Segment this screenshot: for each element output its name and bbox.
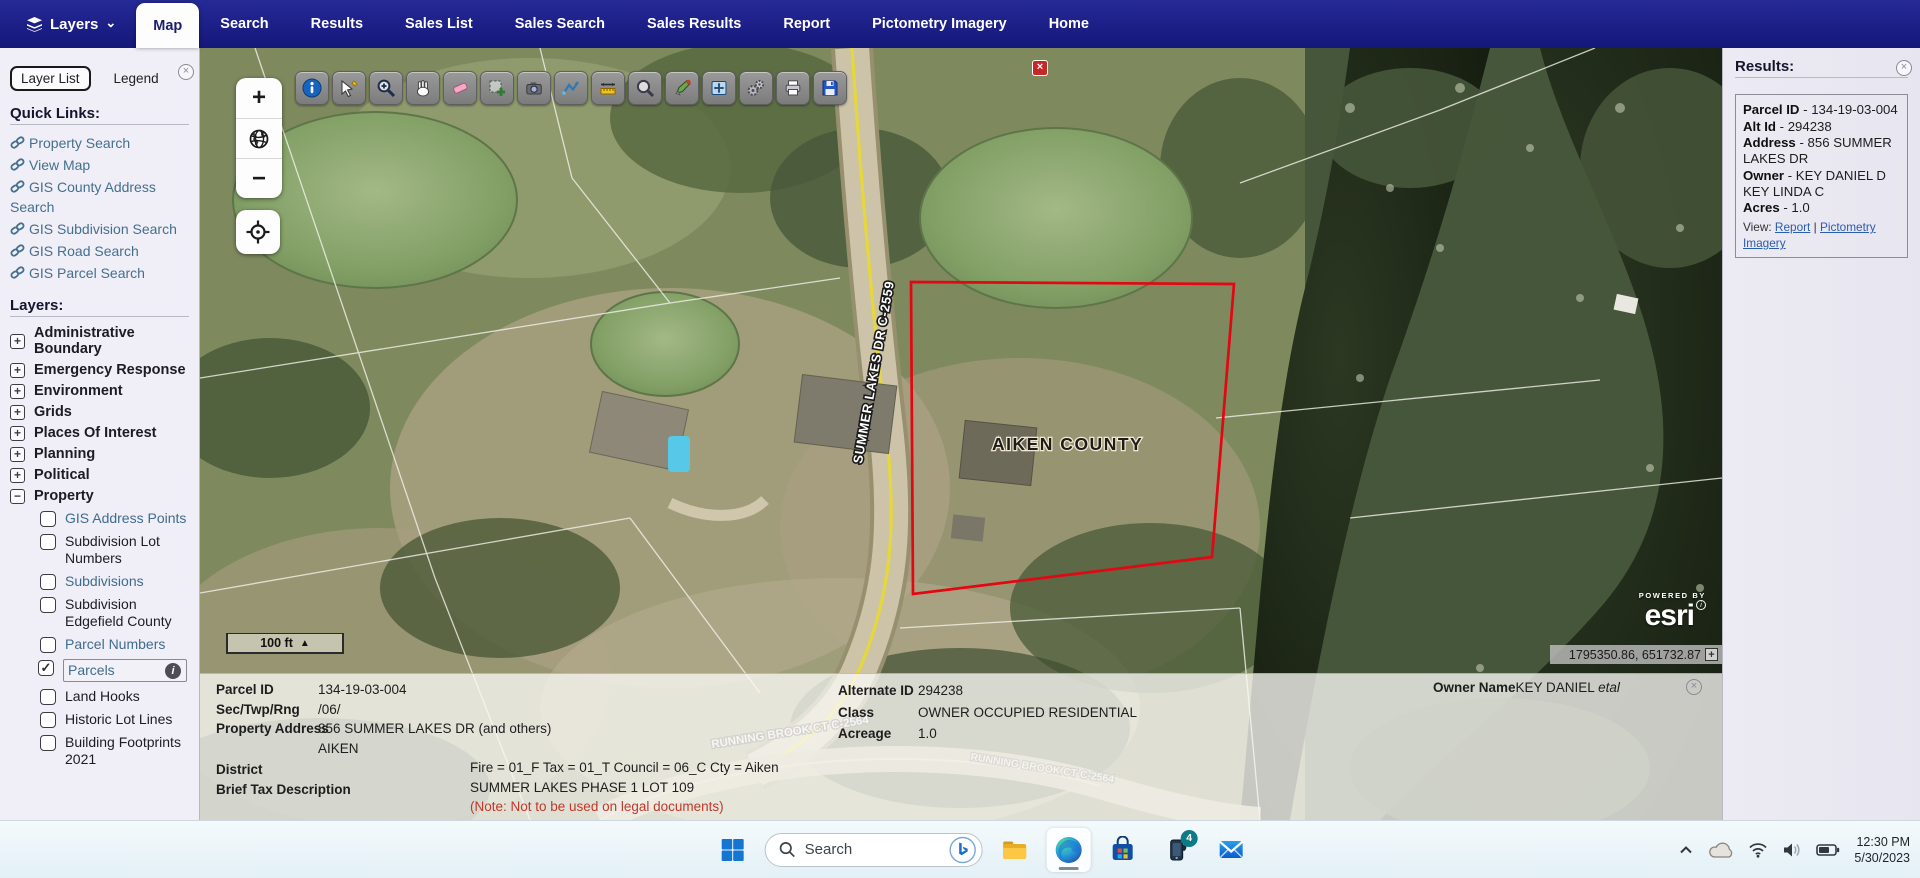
expand-icon[interactable]: + [10, 384, 25, 399]
quick-link-gis-subdivision-search[interactable]: GIS Subdivision Search [10, 219, 189, 239]
tab-map[interactable]: Map [136, 3, 199, 48]
zoom-control: + − [236, 78, 282, 198]
checkbox-gis-address-points[interactable] [40, 511, 56, 527]
locate-button[interactable] [236, 210, 280, 254]
scale-bar: 100 ft ▲ [226, 633, 344, 654]
parcel-detail-panel: × Parcel ID134-19-03-004 Sec/Twp/Rng/06/… [200, 673, 1722, 820]
volume-icon[interactable] [1782, 842, 1802, 858]
esri-info-icon: i [1696, 600, 1706, 610]
layer-historic-lot-lines: Historic Lot Lines [40, 711, 189, 728]
expand-icon[interactable]: + [10, 363, 25, 378]
quick-link-gis-road-search[interactable]: GIS Road Search [10, 241, 189, 261]
search-placeholder: Search [805, 841, 940, 858]
measure-distance-tool-button[interactable] [591, 71, 625, 105]
layer-building-footprints-2021: Building Footprints 2021 [40, 734, 189, 768]
layer-group-places-of-interest: +Places Of Interest [10, 425, 189, 441]
layer-group-property: −Property [10, 488, 189, 504]
hand-icon [413, 78, 433, 98]
checkbox-subdivision-lot-numbers[interactable] [40, 534, 56, 550]
battery-icon[interactable] [1816, 843, 1840, 857]
alternate-id-value: 294238 [918, 680, 1137, 702]
esri-logo: esri [1645, 599, 1694, 632]
camera-icon [524, 78, 544, 98]
brief-tax-value: SUMMER LAKES PHASE 1 LOT 109 [470, 778, 779, 798]
property-address-value: 856 SUMMER LAKES DR (and others) [318, 719, 551, 739]
link-icon [10, 221, 25, 236]
result-field-address: Address - 856 SUMMER LAKES DR [1743, 135, 1900, 167]
quick-links-heading: Quick Links: [10, 105, 189, 122]
result-card: Parcel ID - 134-19-03-004 Alt Id - 29423… [1735, 94, 1908, 258]
save-tool-button[interactable] [813, 71, 847, 105]
result-field-owner: Owner - KEY DANIEL D KEY LINDA C [1743, 168, 1900, 200]
tab-pictometry-imagery[interactable]: Pictometry Imagery [851, 0, 1028, 48]
coordinates-value: 1795350.86, 651732.87 [1569, 648, 1701, 662]
result-field-parcel-id: Parcel ID - 134-19-03-004 [1743, 102, 1900, 118]
tab-results[interactable]: Results [290, 0, 384, 48]
nav-tabs: Map Search Results Sales List Sales Sear… [136, 0, 1110, 48]
coordinate-readout: 1795350.86, 651732.87 + [1550, 645, 1722, 664]
results-panel: × Results: Parcel ID - 134-19-03-004 Alt… [1722, 48, 1920, 820]
checkbox-historic-lot-lines[interactable] [40, 712, 56, 728]
expand-icon[interactable]: + [10, 447, 25, 462]
county-watermark-label: AIKEN COUNTY [992, 434, 1143, 454]
class-value: OWNER OCCUPIED RESIDENTIAL [918, 702, 1137, 724]
layer-group-grids: +Grids [10, 404, 189, 420]
identify-icon [302, 78, 322, 98]
result-view-links: View: Report | Pictometry Imagery [1743, 219, 1900, 251]
layer-sidebar: × Layer List Legend Quick Links: Propert… [0, 48, 200, 820]
zoom-to-selection-tool-button[interactable] [369, 71, 403, 105]
checkbox-subdivision-edgefield-county[interactable] [40, 597, 56, 613]
scale-label: 100 ft [260, 636, 293, 650]
save-icon [820, 78, 840, 98]
taskbar-search-box[interactable]: Search [765, 833, 983, 867]
layer-subdivision-lot-numbers: Subdivision Lot Numbers [40, 533, 189, 567]
divider [1735, 77, 1908, 78]
measure-path-icon [561, 78, 581, 98]
taskbar-clock[interactable]: 12:30 PM 5/30/2023 [1854, 834, 1910, 866]
windows-taskbar: Search 4 12:30 PM 5/30/2023 [0, 820, 1920, 878]
identify-tool-button[interactable] [295, 71, 329, 105]
layer-land-hooks: Land Hooks [40, 688, 189, 705]
checkbox-subdivisions[interactable] [40, 574, 56, 590]
layers-heading: Layers: [10, 297, 189, 314]
bing-icon[interactable] [949, 836, 977, 864]
date: 5/30/2023 [1854, 850, 1910, 866]
legal-note: (Note: Not to be used on legal documents… [470, 797, 779, 817]
info-icon[interactable]: i [165, 663, 181, 679]
windows-start-icon [720, 837, 746, 863]
print-tool-button[interactable] [776, 71, 810, 105]
layer-group-planning: +Planning [10, 446, 189, 462]
sidebar-close-icon[interactable]: × [178, 64, 194, 80]
coordinate-tool-icon[interactable]: + [1705, 648, 1718, 661]
quick-link-gis-county-address-search[interactable]: GIS County Address Search [10, 177, 189, 217]
layers-menu-button[interactable]: Layers ⌄ [0, 0, 136, 48]
owner-name-value: KEY DANIEL [1516, 680, 1599, 695]
layer-subdivisions: Subdivisions [40, 573, 189, 590]
results-title: Results: [1735, 58, 1908, 75]
detail-panel-close-icon[interactable]: × [1686, 679, 1702, 695]
printer-icon [783, 78, 803, 98]
toolbar-close-icon[interactable]: × [1032, 60, 1048, 76]
mail-button[interactable] [1209, 828, 1253, 872]
erase-tool-button[interactable] [443, 71, 477, 105]
outbuilding [951, 514, 985, 541]
layer-parcel-numbers: Parcel Numbers [40, 636, 189, 653]
detail-column-2: Alternate ID294238 ClassOWNER OCCUPIED R… [838, 680, 1137, 745]
tab-search[interactable]: Search [199, 0, 289, 48]
divider [10, 124, 189, 125]
result-field-alt-id: Alt Id - 294238 [1743, 119, 1900, 135]
link-icon [10, 157, 25, 172]
quick-link-gis-parcel-search[interactable]: GIS Parcel Search [10, 263, 189, 283]
home-extent-button[interactable] [236, 118, 282, 158]
gears-icon [746, 78, 766, 98]
tab-layer-list[interactable]: Layer List [10, 66, 91, 91]
link-icon [10, 243, 25, 258]
edge-icon [1054, 835, 1084, 865]
zoom-out-button[interactable]: − [236, 158, 282, 198]
checkbox-parcel-numbers[interactable] [40, 637, 56, 653]
measure-path-tool-button[interactable] [554, 71, 588, 105]
expand-icon[interactable]: + [10, 334, 25, 349]
expand-icon[interactable]: + [10, 405, 25, 420]
tab-sales-search[interactable]: Sales Search [494, 0, 626, 48]
property-city-value: AIKEN [318, 739, 551, 759]
tab-report[interactable]: Report [762, 0, 851, 48]
select-icon [339, 78, 359, 98]
notification-badge: 4 [1181, 830, 1198, 847]
report-link[interactable]: Report [1775, 220, 1810, 234]
quick-link-property-search[interactable]: Property Search [10, 133, 189, 153]
layer-group-political: +Political [10, 467, 189, 483]
link-icon [10, 135, 25, 150]
add-graphic-icon [487, 78, 507, 98]
divider [10, 316, 189, 317]
layer-subdivision-edgefield-county: Subdivision Edgefield County [40, 596, 189, 630]
draw-marker-tool-button[interactable] [665, 71, 699, 105]
link-gears-tool-button[interactable] [739, 71, 773, 105]
esri-attribution: POWERED BY esrii [1639, 591, 1706, 630]
scale-toggle-icon[interactable]: ▲ [300, 638, 310, 649]
marker-pen-icon [672, 78, 692, 98]
parcel-id-value: 134-19-03-004 [318, 680, 551, 700]
detail-column-3: Owner NameKEY DANIEL etal [1433, 680, 1620, 695]
layer-group-administrative-boundary: +Administrative Boundary [10, 325, 189, 357]
layer-parcels: ✓Parcelsi [38, 659, 189, 682]
zoom-in-button[interactable]: + [236, 78, 282, 118]
magnifier-tool-button[interactable] [628, 71, 662, 105]
district-value: Fire = 01_F Tax = 01_T Council = 06_C Ct… [470, 758, 779, 778]
checkbox-land-hooks[interactable] [40, 689, 56, 705]
tab-legend[interactable]: Legend [105, 68, 168, 89]
store-icon [1109, 836, 1137, 864]
building [794, 375, 897, 454]
file-explorer-icon [1001, 836, 1029, 864]
tab-sales-results[interactable]: Sales Results [626, 0, 762, 48]
tray-chevron-up-icon[interactable] [1678, 843, 1694, 857]
results-close-icon[interactable]: × [1896, 60, 1912, 76]
onedrive-cloud-icon[interactable] [1708, 841, 1734, 859]
collapse-icon[interactable]: − [10, 489, 25, 504]
layer-tree: +Administrative Boundary +Emergency Resp… [10, 325, 189, 768]
link-icon [10, 265, 25, 280]
layer-gis-address-points: GIS Address Points [40, 510, 189, 527]
acreage-value: 1.0 [918, 723, 1137, 745]
mail-icon [1216, 835, 1245, 864]
link-icon [10, 179, 25, 194]
add-selection-tool-button[interactable] [480, 71, 514, 105]
edge-browser-button[interactable] [1047, 828, 1091, 872]
crosshair-icon [245, 219, 271, 245]
notifications-phone-button[interactable]: 4 [1155, 828, 1199, 872]
pan-tool-button[interactable] [406, 71, 440, 105]
tab-home[interactable]: Home [1028, 0, 1110, 48]
wifi-icon[interactable] [1748, 842, 1768, 858]
search-icon [635, 78, 655, 98]
extent-icon [709, 78, 729, 98]
expand-icon[interactable]: + [10, 426, 25, 441]
ruler-icon [598, 78, 618, 98]
search-icon [779, 841, 796, 858]
quick-link-view-map[interactable]: View Map [10, 155, 189, 175]
layers-icon [26, 17, 43, 32]
chevron-down-icon: ⌄ [105, 15, 116, 31]
tab-sales-list[interactable]: Sales List [384, 0, 494, 48]
layers-label: Layers [50, 16, 98, 33]
select-features-tool-button[interactable] [332, 71, 366, 105]
checkbox-parcels-checked[interactable]: ✓ [38, 660, 54, 676]
pool [668, 436, 690, 472]
result-field-acres: Acres - 1.0 [1743, 200, 1900, 216]
time: 12:30 PM [1854, 834, 1910, 850]
eraser-icon [450, 78, 470, 98]
map-toolbar [295, 71, 847, 105]
file-explorer-button[interactable] [993, 828, 1037, 872]
sec-twp-rng-value: /06/ [318, 700, 551, 720]
top-navbar: Layers ⌄ Map Search Results Sales List S… [0, 0, 1920, 48]
owner-suffix: etal [1598, 680, 1620, 695]
zoom-in-icon [376, 78, 396, 98]
microsoft-store-button[interactable] [1101, 828, 1145, 872]
layer-group-environment: +Environment [10, 383, 189, 399]
map-canvas[interactable]: AIKEN COUNTY SUMMER LAKES DR C-2559 RUNN… [200, 48, 1722, 820]
layer-group-emergency-response: +Emergency Response [10, 362, 189, 378]
full-extent-tool-button[interactable] [702, 71, 736, 105]
screen: Layers ⌄ Map Search Results Sales List S… [0, 0, 1920, 878]
screenshot-tool-button[interactable] [517, 71, 551, 105]
detail-column-mid: Fire = 01_F Tax = 01_T Council = 06_C Ct… [470, 758, 779, 817]
start-button[interactable] [711, 828, 755, 872]
expand-icon[interactable]: + [10, 468, 25, 483]
checkbox-building-footprints-2021[interactable] [40, 735, 56, 751]
globe-icon [248, 128, 270, 150]
